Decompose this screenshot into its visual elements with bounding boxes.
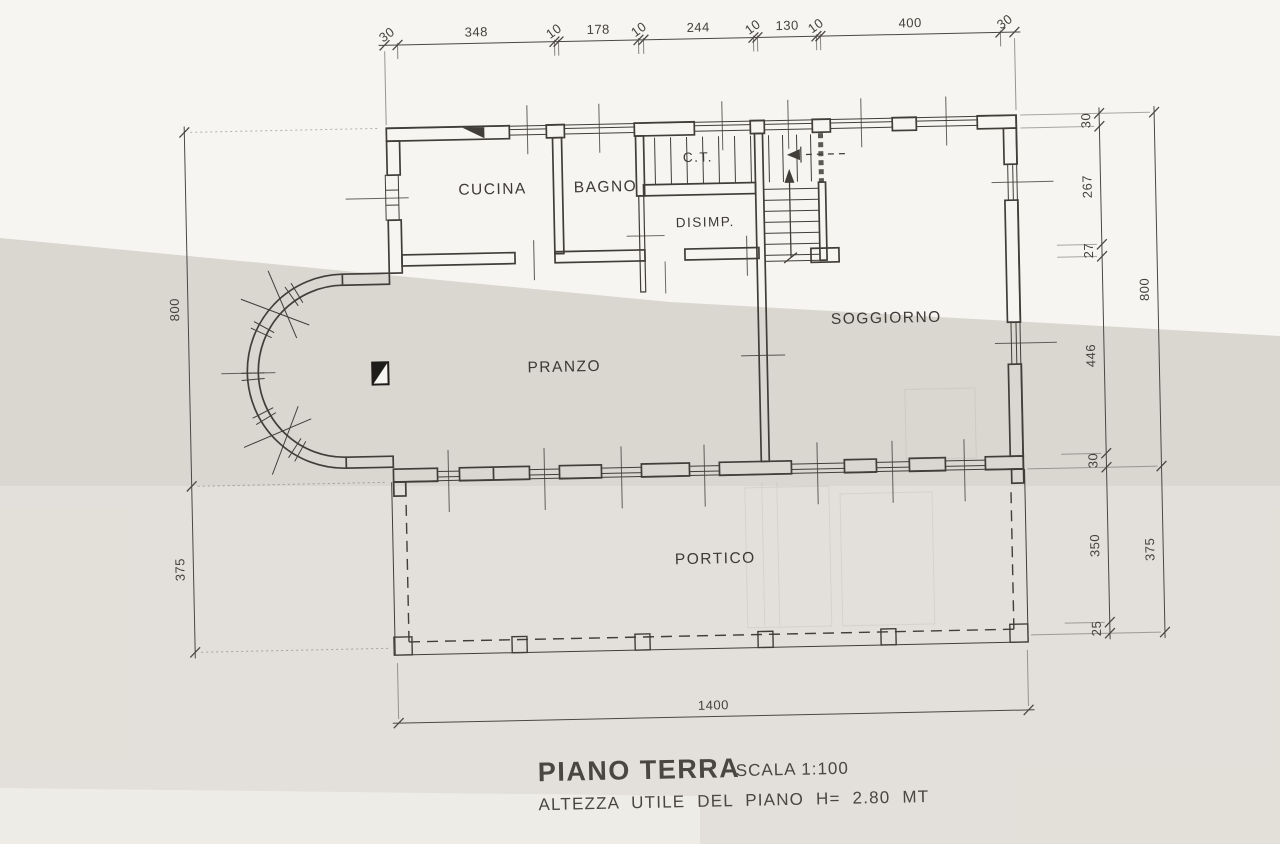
staircase xyxy=(763,182,839,264)
room-label-cucina: CUCINA xyxy=(458,180,527,198)
room-label-soggiorno: SOGGIORNO xyxy=(831,309,942,328)
dimension-labels-right-outer: 800 375 xyxy=(1137,278,1158,561)
kitchen-left-wall-window xyxy=(345,175,409,221)
dimension-labels-right-inner: 30 267 27 446 30 350 25 xyxy=(1078,113,1104,637)
scanned-floor-plan-page: CUCINA BAGNO C.T. DISIMP. SOGGIORNO PRAN… xyxy=(0,0,1280,844)
dimension-labels-top: 30 348 10 178 10 244 10 130 10 400 30 xyxy=(376,11,1016,46)
dimension-line-left xyxy=(179,122,391,658)
scale-label: SCALA 1:100 xyxy=(736,759,849,780)
dim-right-inner-3: 446 xyxy=(1083,344,1098,368)
room-label-ct: C.T. xyxy=(683,149,713,165)
soggiorno-right-wall-windows xyxy=(991,163,1057,364)
floor-plan-svg: CUCINA BAGNO C.T. DISIMP. SOGGIORNO PRAN… xyxy=(0,0,1280,844)
dim-bottom-0: 1400 xyxy=(698,697,729,713)
fireplace-symbol xyxy=(371,361,389,385)
room-label-pranzo: PRANZO xyxy=(527,358,601,377)
dim-right-inner-2: 27 xyxy=(1081,243,1096,259)
height-note: ALTEZZA UTILE DEL PIANO H= 2.80 MT xyxy=(538,787,929,814)
page-title: PIANO TERRA xyxy=(537,753,740,787)
dim-right-inner-4: 30 xyxy=(1085,453,1100,469)
room-label-disimp: DISIMP. xyxy=(676,214,735,230)
bay-window-mullions xyxy=(219,283,306,463)
dim-top-1: 348 xyxy=(464,24,488,39)
dim-top-0: 30 xyxy=(376,24,397,45)
stair-direction-arrow xyxy=(782,169,797,263)
floor-plan-drawing: CUCINA BAGNO C.T. DISIMP. SOGGIORNO PRAN… xyxy=(161,8,1173,822)
room-label-bagno: BAGNO xyxy=(574,178,638,196)
dim-right-inner-5: 350 xyxy=(1087,534,1102,558)
dim-left-0: 800 xyxy=(167,298,182,322)
bay-window xyxy=(219,268,393,475)
wall-fill-triangle-detail xyxy=(462,127,484,138)
dimension-line-bottom xyxy=(391,650,1034,728)
room-label-portico: PORTICO xyxy=(675,550,756,569)
dim-right-outer-1: 375 xyxy=(1142,538,1157,562)
stair-down-dashes xyxy=(786,133,845,183)
top-wall-windows xyxy=(509,96,978,155)
dim-top-3: 178 xyxy=(586,22,610,37)
bleed-through-ghosts xyxy=(743,388,980,628)
dim-top-7: 130 xyxy=(775,18,799,33)
dimension-labels-left: 800 375 xyxy=(167,298,188,581)
dim-top-10: 30 xyxy=(994,11,1015,32)
dim-right-inner-1: 267 xyxy=(1079,175,1094,199)
dim-left-1: 375 xyxy=(172,558,187,582)
room-labels: CUCINA BAGNO C.T. DISIMP. SOGGIORNO PRAN… xyxy=(458,145,947,573)
dim-top-5: 244 xyxy=(686,19,710,34)
title-block: PIANO TERRA SCALA 1:100 ALTEZZA UTILE DE… xyxy=(537,749,929,814)
dim-right-outer-0: 800 xyxy=(1137,278,1152,302)
dimension-line-top xyxy=(378,27,1022,125)
dim-right-inner-0: 30 xyxy=(1078,113,1093,129)
exterior-walls xyxy=(386,115,1024,496)
dim-right-inner-6: 25 xyxy=(1089,621,1104,637)
dim-top-9: 400 xyxy=(898,15,922,30)
dimension-labels-bottom: 1400 xyxy=(698,697,729,713)
